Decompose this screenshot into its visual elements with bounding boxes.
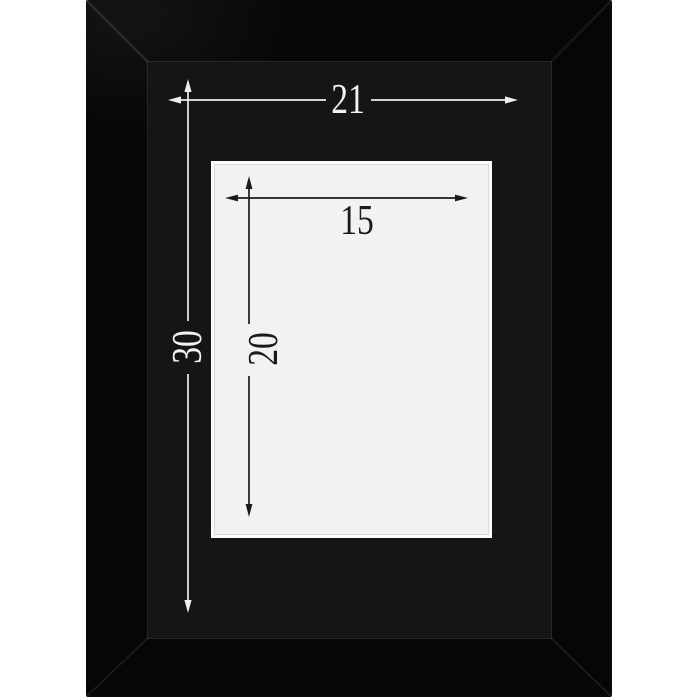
dimension-label-opening-height: 20 xyxy=(243,332,285,366)
dimension-label-outer-width: 21 xyxy=(331,79,365,121)
dimension-label-opening-width: 15 xyxy=(340,200,374,242)
dimension-label-outer-height: 30 xyxy=(167,330,209,364)
product-photo: 21 30 15 20 xyxy=(0,0,700,700)
